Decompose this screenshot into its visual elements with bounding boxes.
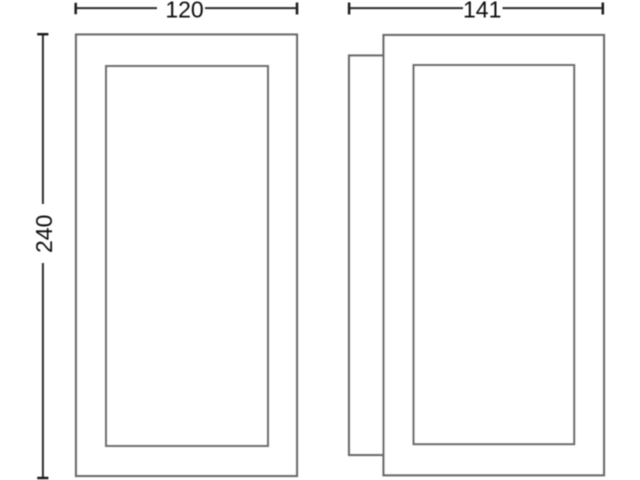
svg-text:120: 120 bbox=[165, 0, 203, 22]
svg-text:141: 141 bbox=[463, 0, 501, 22]
svg-text:240: 240 bbox=[31, 215, 57, 253]
